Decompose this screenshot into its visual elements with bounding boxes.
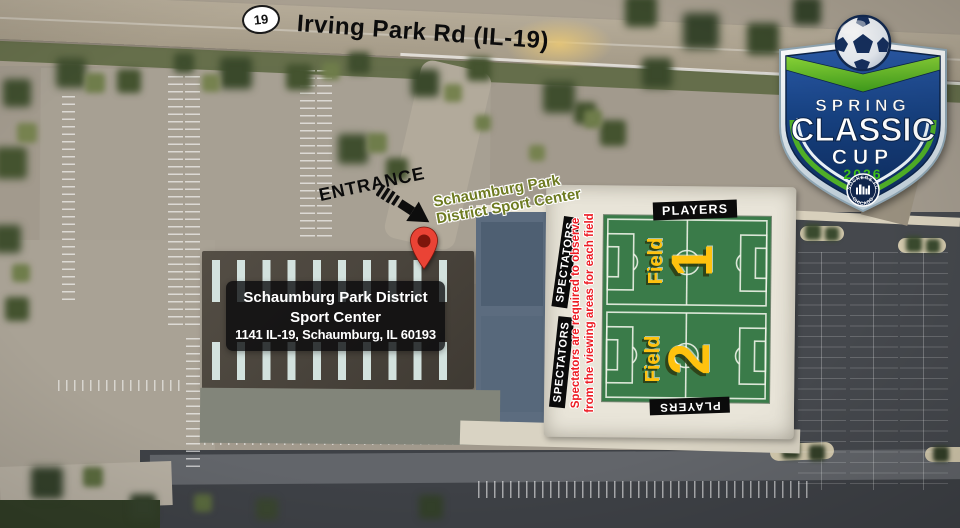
players-label-top: PLAYERS xyxy=(653,200,738,221)
parking-row xyxy=(186,338,200,470)
building-front-plaza xyxy=(200,388,500,446)
map-canvas: Field 1 Field 2 PLAYERS PLAYERS SPECTATO… xyxy=(0,0,960,528)
parking-island xyxy=(898,238,946,253)
trees xyxy=(0,0,2,2)
parking-row xyxy=(850,252,898,490)
warning-line-2: from the viewing areas for each field xyxy=(583,193,597,433)
field-1-label: Field 1 xyxy=(638,229,724,293)
parking-row xyxy=(185,76,200,331)
field-2-number: 2 xyxy=(665,343,714,375)
parking-row xyxy=(58,380,182,391)
map-pin-icon xyxy=(409,226,439,270)
parking-row xyxy=(900,252,948,490)
field-2-label: Field 2 xyxy=(635,327,721,391)
warning-line-1: Spectators are required to observe xyxy=(569,193,583,433)
parking-row xyxy=(798,252,846,490)
parking-island xyxy=(800,226,844,241)
spring-classic-cup-logo: SPRING CLASSIC CUP 2026 SOCKERS FC CHICA… xyxy=(770,14,956,214)
building-blue-section xyxy=(481,222,543,306)
entrance-arrow-icon xyxy=(376,184,440,232)
parking-row xyxy=(478,481,812,498)
players-label-bottom: PLAYERS xyxy=(650,397,730,416)
address-box: Schaumburg Park District Sport Center 11… xyxy=(226,281,445,351)
parking-row xyxy=(300,70,315,242)
soccer-ball-icon xyxy=(836,16,890,70)
parking-row xyxy=(168,76,183,331)
parking-row xyxy=(317,70,332,242)
field-1-number: 1 xyxy=(668,245,717,277)
address-line-1: Schaumburg Park District xyxy=(243,288,427,308)
parking-row xyxy=(62,96,75,301)
address-line-3: 1141 IL-19, Schaumburg, IL 60193 xyxy=(235,327,436,344)
address-line-2: Sport Center xyxy=(290,308,381,328)
tree-band-bottom xyxy=(0,500,160,528)
logo-text-classic: CLASSIC xyxy=(791,111,936,148)
spectator-warning-text: Spectators are required to observe from … xyxy=(569,193,601,433)
